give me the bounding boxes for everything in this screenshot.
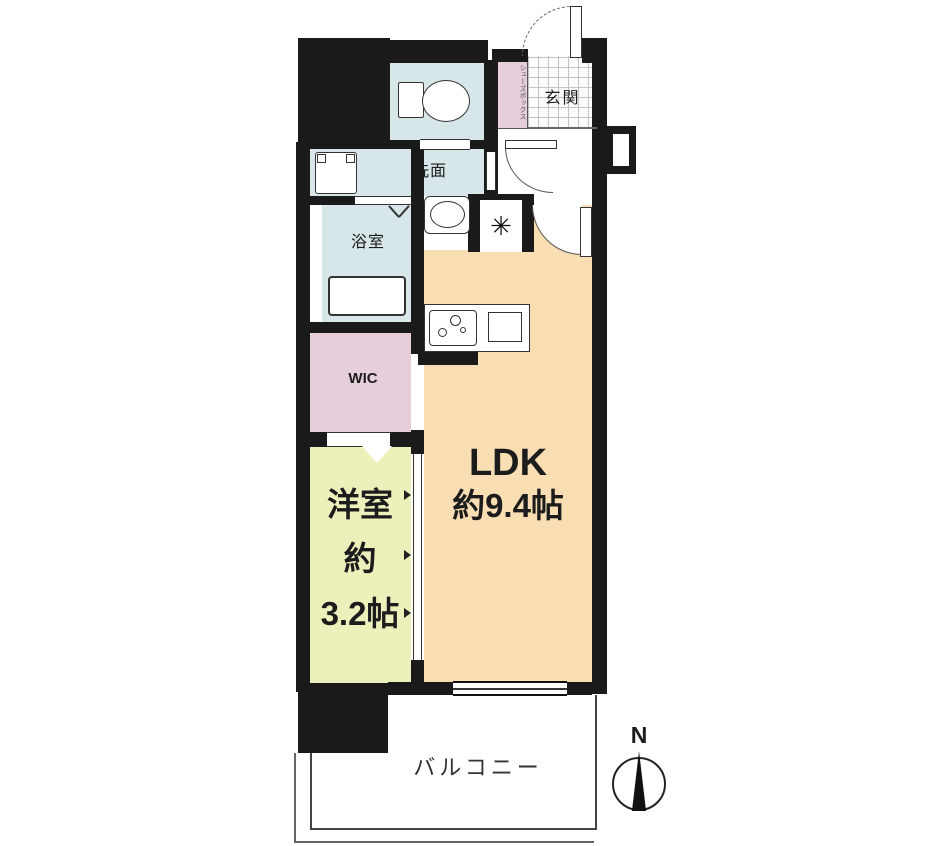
refrigerator-icon: ✳ (480, 200, 522, 252)
toilet-door (420, 139, 470, 150)
wall-block-topleft (298, 38, 390, 143)
stove-burner-icon (450, 315, 461, 326)
meter-box-inner (613, 134, 629, 166)
entrance-door-arc (522, 6, 572, 56)
site-line-bottom (294, 841, 594, 843)
ldk-label: LDK 約9.4帖 (424, 443, 592, 528)
vanity-sink-icon (430, 201, 465, 228)
entrance-door-leaf (570, 6, 582, 58)
shoe-box-label: シューズボックス (498, 64, 526, 126)
ldk-name: LDK (424, 443, 592, 485)
genkan-step-line (528, 127, 597, 129)
washroom-door-leaf (505, 140, 557, 149)
toilet-tank-icon (398, 82, 424, 118)
ldk-door-leaf (580, 207, 592, 257)
stove-burner-icon (438, 328, 447, 337)
washroom-label: 洗面 (390, 157, 470, 181)
bathroom-door-gap (355, 196, 411, 205)
wic-label: WIC (323, 370, 403, 387)
ldk-window-rail (453, 688, 567, 690)
western-room-name: 洋室 (310, 478, 410, 532)
wall-wic-top (309, 322, 411, 333)
ldk-size: 約9.4帖 (424, 485, 592, 528)
sliding-partition (413, 454, 422, 660)
kitchen-sink-icon (488, 312, 522, 342)
floor-plan: ✳ 玄関 シューズボックス 洗面 浴室 WIC 洋室 約 3.2帖 LDK 約9… (0, 0, 932, 846)
toilet-bowl-icon (422, 80, 470, 122)
bathroom-label: 浴室 (328, 228, 408, 252)
wall-left (296, 142, 310, 692)
site-line-left (294, 753, 296, 842)
bathtub-icon (328, 276, 406, 316)
wall-kitchen-stub (418, 352, 478, 365)
western-room-size: 3.2帖 (310, 587, 410, 641)
wall-partition-top (411, 430, 424, 454)
western-room-approx: 約 (310, 532, 410, 586)
genkan-label: 玄関 (528, 84, 597, 108)
washing-machine-corner (317, 154, 326, 163)
balcony-label: バルコニー (358, 750, 598, 782)
washing-machine-corner (346, 154, 355, 163)
wall-right (592, 56, 607, 694)
washroom-door-arc (505, 147, 553, 193)
compass-n-label: N (612, 722, 666, 749)
western-room-label: 洋室 約 3.2帖 (310, 478, 410, 641)
washroom-door-gap (486, 152, 496, 190)
wic-western-door (327, 432, 390, 447)
wall-bath-top-stub (309, 196, 355, 205)
stove-burner-icon (460, 327, 466, 333)
wall-toilet-top (388, 40, 488, 63)
wall-block-bottomleft (298, 683, 388, 753)
